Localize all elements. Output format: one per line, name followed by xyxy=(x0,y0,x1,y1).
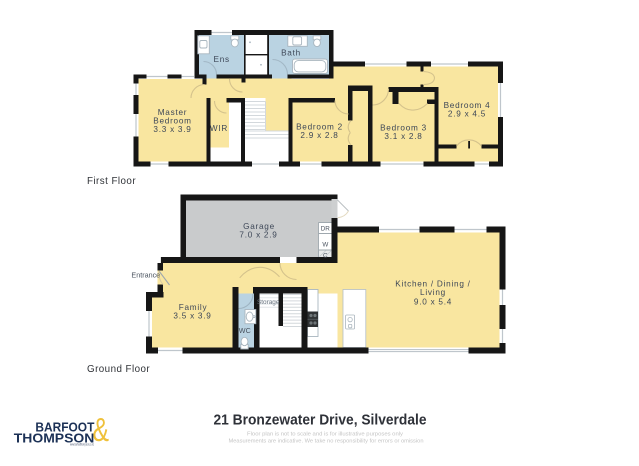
svg-text:Living: Living xyxy=(420,288,446,297)
svg-text:Storage: Storage xyxy=(257,299,280,306)
svg-text:W: W xyxy=(322,242,328,249)
svg-text:21 Bronzewater Drive, Silverda: 21 Bronzewater Drive, Silverdale xyxy=(214,413,427,429)
svg-text:2.9 x 4.5: 2.9 x 4.5 xyxy=(448,110,486,119)
svg-text:C: C xyxy=(323,252,328,259)
svg-text:Floor plan is not to scale and: Floor plan is not to scale and is for il… xyxy=(247,432,403,438)
svg-text:Entrance: Entrance xyxy=(131,271,160,280)
svg-text:3.1 x 2.8: 3.1 x 2.8 xyxy=(384,132,422,141)
svg-text:WC: WC xyxy=(239,326,251,335)
svg-text:7.0 x 2.9: 7.0 x 2.9 xyxy=(239,231,277,240)
svg-text:WIR: WIR xyxy=(210,124,228,133)
svg-text:www.barfootthompson.co.nz: www.barfootthompson.co.nz xyxy=(70,443,94,447)
svg-text:Ens: Ens xyxy=(214,55,230,64)
svg-text:2.9 x 2.8: 2.9 x 2.8 xyxy=(300,131,338,140)
svg-text:Bath: Bath xyxy=(281,48,301,57)
svg-text:9.0 x 5.4: 9.0 x 5.4 xyxy=(414,298,452,307)
svg-text:3.5 x 3.9: 3.5 x 3.9 xyxy=(173,312,211,321)
svg-text:3.3 x 3.9: 3.3 x 3.9 xyxy=(153,125,191,134)
svg-text:Measurements are indicative. W: Measurements are indicative. We take no … xyxy=(229,438,424,444)
svg-text:Ground Floor: Ground Floor xyxy=(87,364,150,375)
svg-text:&: & xyxy=(93,411,110,448)
svg-text:First Floor: First Floor xyxy=(87,176,136,187)
svg-text:DR: DR xyxy=(321,226,331,233)
